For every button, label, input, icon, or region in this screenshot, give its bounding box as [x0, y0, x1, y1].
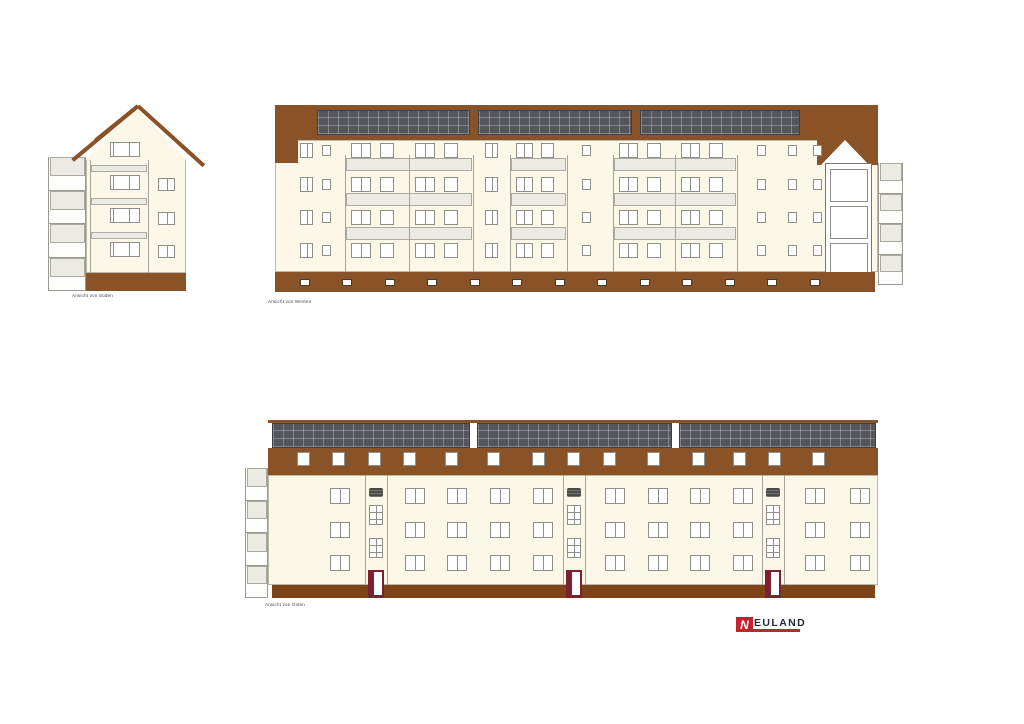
- window-mullion: [425, 211, 426, 224]
- window-mullion: [615, 556, 616, 570]
- window: [788, 212, 797, 223]
- window-mullion: [743, 556, 744, 570]
- window: [813, 145, 822, 156]
- window-mullion: [113, 176, 114, 189]
- window: [405, 522, 425, 538]
- solar-panel-array: [272, 423, 470, 448]
- window-mullion: [500, 556, 501, 570]
- entrance-door-leaf: [771, 572, 779, 595]
- loggia-edge: [613, 155, 614, 272]
- balcony-slab: [246, 597, 268, 598]
- logo: N EULAND: [736, 617, 806, 632]
- window: [690, 522, 710, 538]
- window: [582, 145, 591, 156]
- window: [788, 145, 797, 156]
- window: [516, 210, 533, 225]
- dormer-window: [603, 452, 616, 466]
- logo-text: EULAND: [753, 617, 806, 629]
- stairwell-edge: [387, 475, 388, 585]
- window: [444, 210, 458, 225]
- basement-vent: [427, 279, 437, 286]
- window-mullion: [815, 489, 816, 503]
- window-mullion: [860, 556, 861, 570]
- dormer-window: [532, 452, 545, 466]
- dormer-window: [768, 452, 781, 466]
- window: [567, 505, 581, 525]
- dormer-window: [403, 452, 416, 466]
- stairwell-edge: [784, 475, 785, 585]
- loggia-edge: [473, 155, 474, 272]
- window: [541, 243, 554, 258]
- window: [850, 488, 870, 504]
- entrance-door: [765, 570, 781, 598]
- window-mullion: [457, 556, 458, 570]
- window-mullion: [700, 523, 701, 537]
- window: [619, 243, 638, 258]
- dormer-window: [445, 452, 458, 466]
- window: [733, 488, 753, 504]
- drawing-sheet: Ansicht von Süden Ansicht von Westen Ans…: [0, 0, 1024, 724]
- balcony-parapet: [50, 191, 85, 210]
- dormer-window: [812, 452, 825, 466]
- window-mullion: [361, 144, 362, 157]
- window: [681, 143, 700, 158]
- window: [369, 505, 383, 525]
- window: [813, 212, 822, 223]
- window: [300, 143, 313, 158]
- window: [533, 488, 553, 504]
- balcony-parapet: [880, 163, 902, 181]
- solar-panel-array: [679, 423, 876, 448]
- window: [541, 210, 554, 225]
- window-mullion: [658, 489, 659, 503]
- window: [351, 243, 370, 258]
- window: [605, 522, 625, 538]
- window: [690, 488, 710, 504]
- window: [110, 175, 140, 190]
- balcony-parapet: [880, 194, 902, 212]
- window-mullion: [376, 539, 377, 557]
- window: [351, 210, 370, 225]
- window-mullion: [860, 489, 861, 503]
- loggia-edge: [148, 160, 149, 273]
- window-mullion: [340, 523, 341, 537]
- balcony-parapet: [247, 566, 267, 585]
- loggia-edge: [737, 155, 738, 272]
- window-mullion: [815, 556, 816, 570]
- window: [619, 177, 638, 192]
- stairwell-edge: [585, 475, 586, 585]
- dormer-window: [733, 452, 746, 466]
- loggia-edge: [90, 160, 91, 273]
- window: [110, 208, 140, 223]
- window-mullion: [457, 523, 458, 537]
- loggia-divider: [675, 155, 676, 272]
- window: [533, 522, 553, 538]
- dormer-window: [692, 452, 705, 466]
- window: [322, 145, 331, 156]
- window: [709, 210, 723, 225]
- stairwell-vent-grille: [567, 488, 581, 497]
- basement-vent: [597, 279, 607, 286]
- window: [757, 145, 766, 156]
- window-mullion: [376, 506, 377, 524]
- window: [322, 179, 331, 190]
- gable-notch: [821, 140, 869, 165]
- window-mullion: [658, 556, 659, 570]
- window: [447, 522, 467, 538]
- stairwell-edge: [762, 475, 763, 585]
- basement-vent: [555, 279, 565, 286]
- balcony-slab: [879, 284, 903, 285]
- window: [647, 243, 661, 258]
- window-mullion: [307, 211, 308, 224]
- stairwell-vent-grille: [766, 488, 780, 497]
- stair-tower: [825, 163, 872, 282]
- basement-vent: [810, 279, 820, 286]
- window: [619, 210, 638, 225]
- basement-vent: [342, 279, 352, 286]
- window-mullion: [500, 523, 501, 537]
- window: [444, 243, 458, 258]
- balcony-parapet: [50, 157, 85, 176]
- window-mullion: [628, 144, 629, 157]
- window: [813, 245, 822, 256]
- window-mullion: [524, 244, 525, 257]
- window: [805, 488, 825, 504]
- window-mullion: [370, 552, 382, 553]
- logo-mark: N: [740, 618, 749, 632]
- window: [648, 488, 668, 504]
- loggia-parapet-band: [511, 193, 566, 206]
- window: [322, 212, 331, 223]
- solar-panel-array: [317, 110, 470, 135]
- balcony-parapet: [50, 224, 85, 243]
- window: [757, 179, 766, 190]
- loggia-parapet-band: [91, 198, 147, 205]
- window-mullion: [773, 539, 774, 557]
- window-mullion: [743, 523, 744, 537]
- balcony-parapet: [880, 224, 902, 242]
- loggia-parapet-band: [511, 158, 566, 171]
- window: [485, 143, 498, 158]
- window: [647, 177, 661, 192]
- window-mullion: [767, 512, 779, 513]
- dormer-window: [647, 452, 660, 466]
- window-mullion: [415, 523, 416, 537]
- window-mullion: [113, 243, 114, 256]
- balcony-parapet: [247, 533, 267, 552]
- window: [681, 210, 700, 225]
- basement-vent: [682, 279, 692, 286]
- window: [405, 488, 425, 504]
- window: [709, 143, 723, 158]
- window: [300, 177, 313, 192]
- entrance-door-leaf: [374, 572, 382, 595]
- elevation-west: [275, 105, 905, 295]
- window: [158, 212, 175, 225]
- window: [300, 210, 313, 225]
- dormer-window: [567, 452, 580, 466]
- window-mullion: [415, 556, 416, 570]
- window-mullion: [628, 211, 629, 224]
- window: [330, 522, 350, 538]
- stairwell-vent-grille: [369, 488, 383, 497]
- window: [681, 243, 700, 258]
- loggia-parapet-band: [91, 165, 147, 172]
- elevation-south: [48, 100, 213, 300]
- balcony-stack: [48, 157, 86, 291]
- window-mullion: [361, 211, 362, 224]
- window-mullion: [773, 506, 774, 524]
- window-mullion: [457, 489, 458, 503]
- window-mullion: [860, 523, 861, 537]
- window: [805, 522, 825, 538]
- dormer-window: [368, 452, 381, 466]
- window-mullion: [307, 144, 308, 157]
- window: [533, 555, 553, 571]
- window: [415, 243, 434, 258]
- window: [648, 522, 668, 538]
- window: [619, 143, 638, 158]
- window: [567, 538, 581, 558]
- window-mullion: [568, 552, 580, 553]
- window-mullion: [425, 144, 426, 157]
- basement-vent: [640, 279, 650, 286]
- stairwell-edge: [365, 475, 366, 585]
- window: [330, 488, 350, 504]
- basement-vent: [725, 279, 735, 286]
- basement-vent: [300, 279, 310, 286]
- window-mullion: [690, 211, 691, 224]
- logo-tagline-bar: [753, 629, 800, 632]
- window-mullion: [767, 545, 779, 546]
- window-mullion: [574, 539, 575, 557]
- loggia-divider: [409, 155, 410, 272]
- window-mullion: [628, 244, 629, 257]
- window-mullion: [113, 143, 114, 156]
- window: [766, 538, 780, 558]
- window-mullion: [568, 512, 580, 513]
- window-mullion: [370, 545, 382, 546]
- solar-panel-array: [477, 423, 672, 448]
- elevation-east: [245, 420, 878, 605]
- entrance-door-leaf: [572, 572, 580, 595]
- window: [605, 555, 625, 571]
- entrance-door: [566, 570, 582, 598]
- stairwell-edge: [563, 475, 564, 585]
- window: [766, 505, 780, 525]
- window: [351, 143, 370, 158]
- window-mullion: [492, 144, 493, 157]
- window: [485, 243, 498, 258]
- window: [681, 177, 700, 192]
- window-mullion: [690, 244, 691, 257]
- window-mullion: [568, 519, 580, 520]
- window-mullion: [167, 213, 168, 224]
- window-mullion: [370, 519, 382, 520]
- window: [541, 177, 554, 192]
- tower-window: [830, 169, 868, 202]
- loggia-edge: [345, 155, 346, 272]
- window: [110, 142, 140, 157]
- window-mullion: [815, 523, 816, 537]
- window-mullion: [425, 244, 426, 257]
- label-south-elevation: Ansicht von Süden: [72, 293, 113, 298]
- window-mullion: [543, 489, 544, 503]
- window-mullion: [492, 211, 493, 224]
- loggia-parapet-band: [91, 232, 147, 239]
- window: [582, 212, 591, 223]
- window-mullion: [615, 523, 616, 537]
- window-mullion: [167, 246, 168, 257]
- balcony-stack: [878, 163, 903, 285]
- window-mullion: [568, 545, 580, 546]
- window: [380, 243, 394, 258]
- window: [444, 143, 458, 158]
- window: [516, 143, 533, 158]
- window-mullion: [129, 143, 130, 156]
- window: [447, 555, 467, 571]
- window-mullion: [767, 552, 779, 553]
- window-mullion: [628, 178, 629, 191]
- window: [709, 177, 723, 192]
- window-mullion: [492, 244, 493, 257]
- window: [485, 210, 498, 225]
- window-mullion: [658, 523, 659, 537]
- basement-vent: [385, 279, 395, 286]
- window-mullion: [425, 178, 426, 191]
- balcony-parapet: [247, 501, 267, 520]
- label-west-elevation: Ansicht von Westen: [268, 299, 311, 304]
- window-mullion: [340, 489, 341, 503]
- window-mullion: [361, 244, 362, 257]
- dormer-window: [332, 452, 345, 466]
- window: [541, 143, 554, 158]
- basement-vent: [512, 279, 522, 286]
- window-mullion: [361, 178, 362, 191]
- window: [690, 555, 710, 571]
- window: [490, 522, 510, 538]
- window: [850, 555, 870, 571]
- window: [648, 555, 668, 571]
- logo-n-tile: N: [736, 617, 753, 632]
- logo-right: EULAND: [753, 617, 806, 632]
- window: [647, 143, 661, 158]
- window: [805, 555, 825, 571]
- window-mullion: [690, 178, 691, 191]
- window-mullion: [524, 211, 525, 224]
- window: [490, 555, 510, 571]
- balcony-slab: [49, 290, 86, 291]
- roof-corner-block: [275, 105, 298, 163]
- window-mullion: [743, 489, 744, 503]
- window-mullion: [129, 176, 130, 189]
- window: [788, 245, 797, 256]
- window: [380, 177, 394, 192]
- loggia-edge: [510, 155, 511, 272]
- window: [647, 210, 661, 225]
- window: [300, 243, 313, 258]
- window: [850, 522, 870, 538]
- solar-panel-array: [640, 110, 800, 135]
- window-mullion: [543, 523, 544, 537]
- window-mullion: [492, 178, 493, 191]
- window: [709, 243, 723, 258]
- window: [110, 242, 140, 257]
- tower-window: [830, 206, 868, 239]
- window-mullion: [767, 519, 779, 520]
- window: [582, 179, 591, 190]
- window: [733, 555, 753, 571]
- balcony-stack: [245, 468, 268, 598]
- window-mullion: [129, 243, 130, 256]
- window: [485, 177, 498, 192]
- window: [415, 143, 434, 158]
- window: [415, 210, 434, 225]
- basement-vent: [470, 279, 480, 286]
- window: [444, 177, 458, 192]
- loggia-parapet-band: [511, 227, 566, 240]
- loggia-edge: [567, 155, 568, 272]
- balcony-parapet: [880, 255, 902, 273]
- window-mullion: [113, 209, 114, 222]
- window-mullion: [129, 209, 130, 222]
- window: [322, 245, 331, 256]
- window: [490, 488, 510, 504]
- window: [757, 245, 766, 256]
- window: [351, 177, 370, 192]
- window: [813, 179, 822, 190]
- label-east-elevation: Ansicht von Osten: [265, 602, 305, 607]
- dormer-window: [487, 452, 500, 466]
- window: [757, 212, 766, 223]
- balcony-parapet: [50, 258, 85, 277]
- window-mullion: [340, 556, 341, 570]
- plinth-base: [275, 272, 875, 292]
- window: [415, 177, 434, 192]
- window: [516, 243, 533, 258]
- window-mullion: [524, 178, 525, 191]
- window-mullion: [700, 489, 701, 503]
- window: [405, 555, 425, 571]
- entrance-door: [368, 570, 384, 598]
- window: [733, 522, 753, 538]
- window-mullion: [500, 489, 501, 503]
- window: [582, 245, 591, 256]
- window: [516, 177, 533, 192]
- window: [369, 538, 383, 558]
- window: [330, 555, 350, 571]
- window-mullion: [524, 144, 525, 157]
- dormer-window: [297, 452, 310, 466]
- window: [605, 488, 625, 504]
- window: [447, 488, 467, 504]
- window: [158, 178, 175, 191]
- window: [380, 210, 394, 225]
- balcony-parapet: [247, 468, 267, 487]
- solar-panel-array: [478, 110, 632, 135]
- window: [158, 245, 175, 258]
- window-mullion: [543, 556, 544, 570]
- window-mullion: [415, 489, 416, 503]
- window-mullion: [307, 178, 308, 191]
- window: [380, 143, 394, 158]
- window: [788, 179, 797, 190]
- window-mullion: [574, 506, 575, 524]
- window-mullion: [370, 512, 382, 513]
- window-mullion: [307, 244, 308, 257]
